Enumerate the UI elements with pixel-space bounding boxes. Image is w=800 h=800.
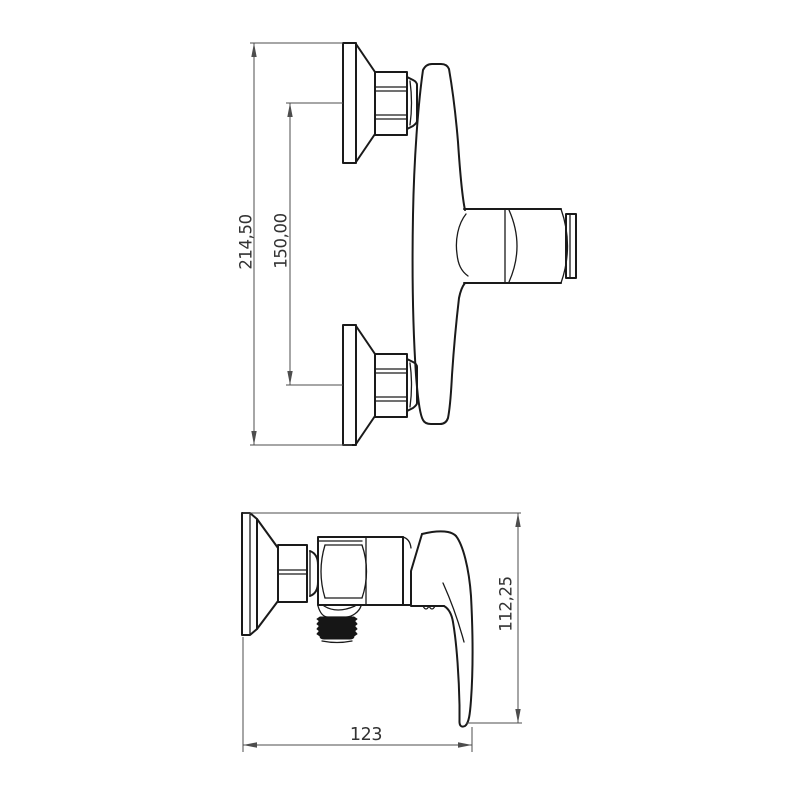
side-view: [343, 43, 576, 445]
dimension-labels: 214,50 150,00 112,25 123: [237, 213, 516, 745]
threaded-outlet: [317, 617, 357, 639]
mounting-plate-top: [343, 43, 356, 163]
lever-crease: [443, 583, 464, 642]
mixer-body-silhouette: [413, 64, 465, 424]
drawing-sheet: 214,50 150,00 112,25 123: [0, 0, 800, 800]
dim-label-depth: 112,25: [497, 576, 516, 631]
connector-front: [310, 551, 318, 596]
mounting-plate-bottom: [343, 325, 356, 445]
arrowheads-front-view: [243, 513, 521, 748]
front-view-dimensions: [243, 513, 522, 752]
handle-section-arc: [509, 210, 517, 282]
dim-label-port-spacing: 150,00: [272, 213, 291, 268]
dim-label-width: 123: [350, 725, 382, 745]
dim-label-total-height: 214,50: [237, 214, 256, 269]
outlet-collar: [318, 606, 361, 617]
lever-inner-edge: [444, 606, 460, 716]
front-view: [242, 513, 473, 727]
escutcheon-left-edge: [411, 534, 422, 604]
side-view-dimensions: [250, 43, 352, 445]
barrel-nut: [325, 545, 362, 598]
lever-handle: [411, 531, 473, 726]
flange-cone-bottom: [356, 326, 375, 444]
body-shoulder: [403, 537, 411, 548]
technical-drawing: 214,50 150,00 112,25 123: [0, 0, 800, 800]
union-ring-front: [278, 545, 307, 602]
wall-flange-bottom: [343, 325, 417, 445]
wall-plate-front: [242, 513, 257, 635]
flange-cone-top: [356, 44, 375, 162]
handle-body-fillet: [456, 214, 468, 276]
flange-cone-front: [257, 519, 278, 629]
lever-top-edge: [422, 531, 456, 536]
handle-cylinder: [464, 209, 576, 283]
valve-body-front: [317, 537, 411, 643]
wall-flange-top: [343, 43, 417, 163]
union-nut-bottom: [375, 354, 407, 417]
union-nut-top: [375, 72, 407, 135]
